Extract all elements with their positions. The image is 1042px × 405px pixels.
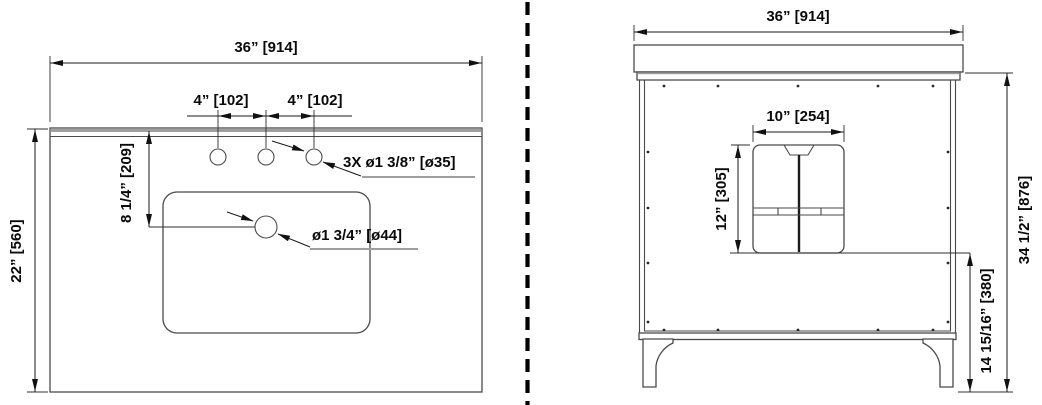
sink-basin-outline	[163, 192, 370, 333]
plan-width-label: 36” [914]	[234, 39, 297, 56]
elevation-view: 36” [914] 10” [254] 12” [305] 14 15/16” …	[634, 8, 1033, 392]
drain-label: ø1 3/4” [ø44]	[312, 227, 402, 244]
technical-drawing-canvas: 36” [914] 22” [560] 4” [102] 4” [102] 8 …	[0, 0, 1042, 405]
drawing-svg: 36” [914] 22” [560] 4” [102] 4” [102] 8 …	[0, 0, 1042, 405]
cabinet-leg-right	[923, 339, 953, 387]
plan-view: 36” [914] 22” [560] 4” [102] 4” [102] 8 …	[8, 39, 482, 392]
elevation-width-label: 36” [914]	[766, 8, 829, 25]
cutout-height-label: 12” [305]	[713, 167, 730, 230]
hole-spacing-left-label: 4” [102]	[193, 92, 248, 109]
plan-depth-label: 22” [560]	[8, 219, 25, 282]
cutout-width-label: 10” [254]	[766, 108, 829, 125]
hole-spacing-right-label: 4” [102]	[287, 92, 342, 109]
drain-offset-label: 8 1/4” [209]	[118, 143, 135, 223]
faucet-holes-label: 3X ø1 3/8” [ø35]	[343, 154, 456, 171]
overall-height-label: 34 1/2” [876]	[1016, 176, 1033, 264]
cabinet-leg-left	[643, 339, 673, 387]
counter-slab	[634, 45, 963, 72]
cabinet-bottom-rail	[639, 333, 956, 340]
cutout-floor-offset-label: 14 15/16” [380]	[978, 268, 995, 373]
